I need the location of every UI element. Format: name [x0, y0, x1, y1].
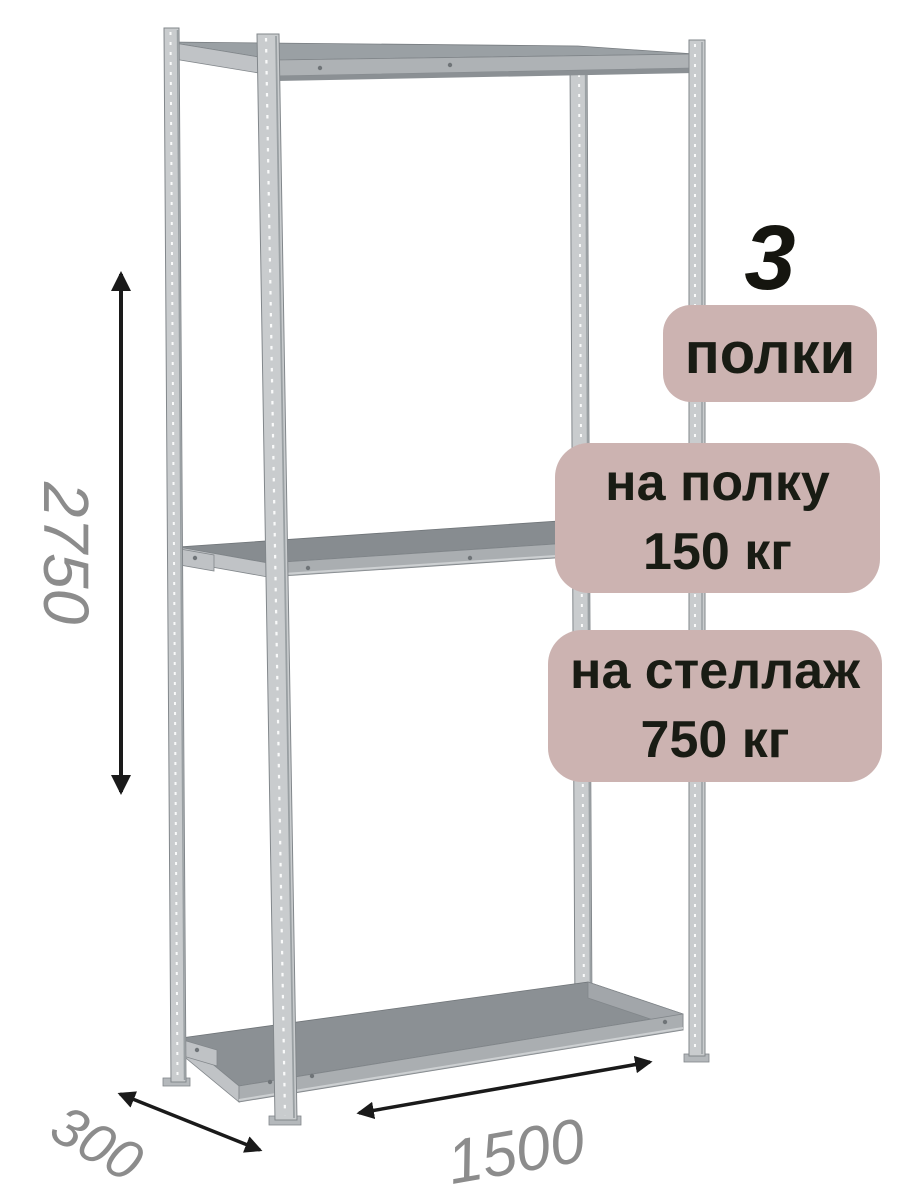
- screw-dot: [268, 1080, 272, 1084]
- product-image: 2750 300 1500 3 полки на полку 150 кг на…: [0, 0, 900, 1200]
- bottom-shelf: [181, 982, 683, 1102]
- shelf-load-badge: на полку 150 кг: [555, 443, 880, 593]
- screw-dot: [310, 1074, 314, 1078]
- rack-load-line2: 750 кг: [641, 706, 790, 775]
- screw-dot: [195, 1048, 199, 1052]
- width-dimension-label: 1500: [442, 1106, 590, 1198]
- front-left-post: [257, 34, 301, 1125]
- screw-dot: [448, 63, 452, 67]
- shelf-count-badge: полки: [663, 305, 877, 402]
- rack-load-badge: на стеллаж 750 кг: [548, 630, 882, 782]
- screw-dot: [193, 556, 197, 560]
- screw-dot: [318, 66, 322, 70]
- screw-dot: [306, 566, 310, 570]
- screw-dot: [468, 556, 472, 560]
- shelf-load-line1: на полку: [605, 449, 830, 518]
- screw-dot: [663, 1020, 667, 1024]
- depth-dimension-label: 300: [41, 1092, 153, 1193]
- height-dimension-label: 2750: [30, 481, 102, 625]
- shelf-count-label: полки: [685, 320, 856, 387]
- rack-illustration: 2750 300 1500: [0, 0, 900, 1200]
- shelf-load-line2: 150 кг: [643, 518, 792, 587]
- rack-load-line1: на стеллаж: [570, 637, 860, 706]
- shelf-count-number: 3: [663, 212, 877, 304]
- top-shelf: [168, 42, 695, 81]
